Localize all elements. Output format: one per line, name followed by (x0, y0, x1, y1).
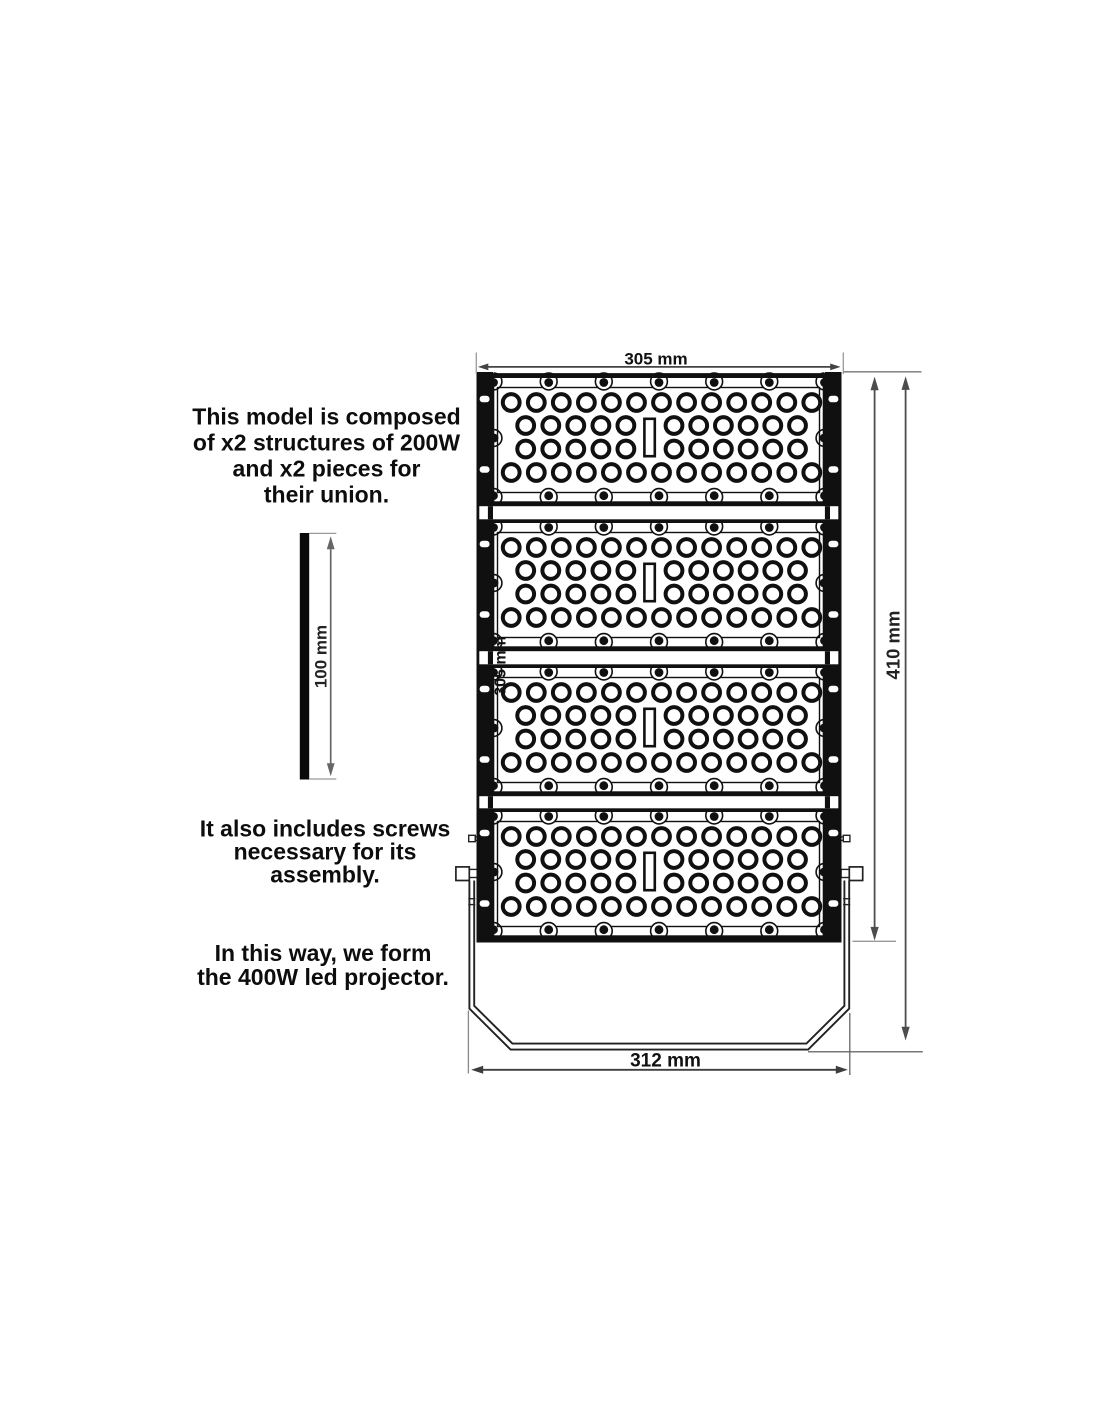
svg-text:410 mm: 410 mm (883, 611, 904, 680)
svg-text:In this way, we form: In this way, we form (215, 940, 432, 966)
svg-text:assembly.: assembly. (270, 862, 380, 888)
svg-text:and x2 pieces for: and x2 pieces for (233, 455, 421, 481)
svg-text:305 mm: 305 mm (493, 636, 510, 696)
svg-text:This model is composed: This model is composed (192, 403, 460, 429)
svg-text:305 mm: 305 mm (624, 350, 687, 369)
svg-text:their union.: their union. (264, 481, 389, 507)
svg-text:the 400W led projector.: the 400W led projector. (197, 964, 449, 990)
svg-text:of x2 structures of 200W: of x2 structures of 200W (193, 429, 460, 455)
svg-text:100 mm: 100 mm (312, 625, 331, 688)
svg-text:312 mm: 312 mm (630, 1051, 701, 1072)
